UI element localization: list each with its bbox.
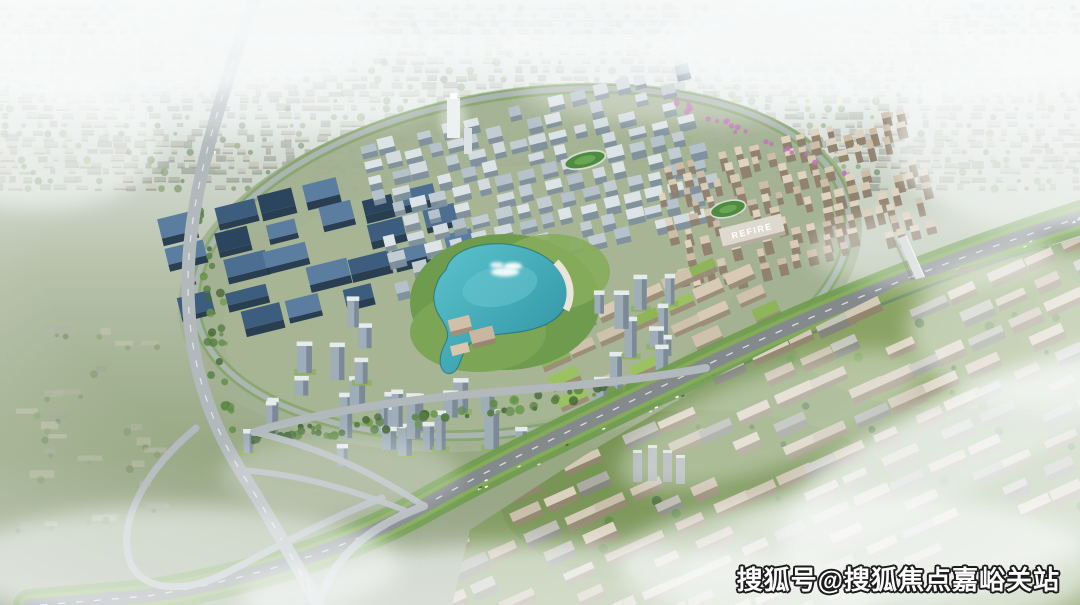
edge-haze-veil [0,0,1080,605]
scene-canvas: REFIRE [0,0,1080,605]
watermark-text: 搜狐号@搜狐焦点嘉峪关站 [737,560,1060,597]
aerial-masterplan-render: REFIRE [0,0,1080,605]
